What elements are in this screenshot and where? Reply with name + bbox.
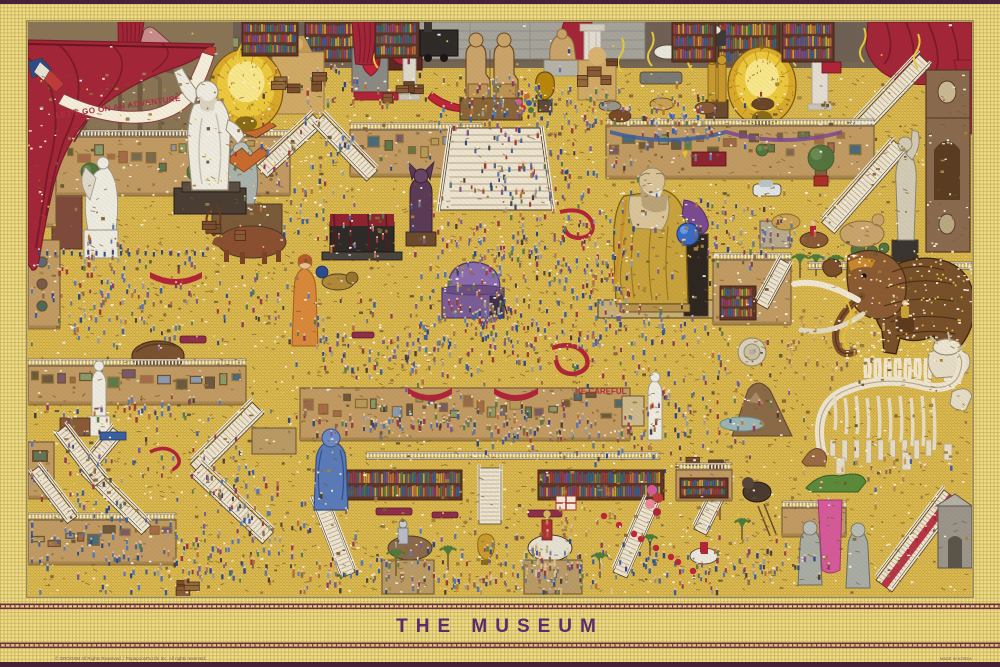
svg-text:THE MUSEUM: THE MUSEUM: [396, 616, 604, 637]
svg-text:© GROOSM All Rights Reserved.: © GROOSM All Rights Reserved. / Pepapoos…: [55, 655, 206, 661]
svg-text:MADE IN KOREA: MADE IN KOREA: [940, 656, 972, 661]
